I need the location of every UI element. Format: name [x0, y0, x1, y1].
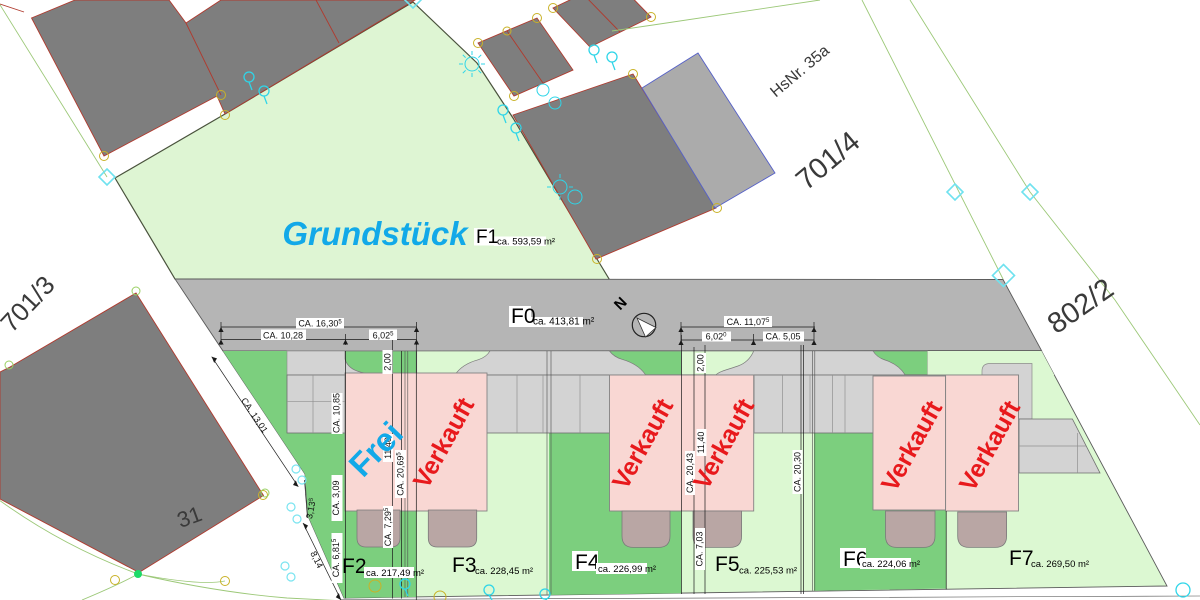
svg-text:Grundstück: Grundstück [282, 215, 469, 252]
svg-text:ca. 228,45 m²: ca. 228,45 m² [475, 566, 533, 577]
svg-text:ca. 224,06 m²: ca. 224,06 m² [862, 559, 920, 570]
svg-text:F7: F7 [1009, 547, 1034, 570]
svg-text:ca. 593,59 m²: ca. 593,59 m² [497, 237, 555, 248]
svg-text:CA. 10,85: CA. 10,85 [332, 393, 342, 433]
svg-text:ca. 217,49 m²: ca. 217,49 m² [366, 568, 424, 579]
svg-text:2,00: 2,00 [696, 354, 706, 372]
svg-text:ca. 269,50 m²: ca. 269,50 m² [1031, 559, 1089, 570]
svg-text:CA. 6,815: CA. 6,815 [331, 538, 341, 577]
svg-text:CA. 7,03: CA. 7,03 [695, 531, 705, 566]
svg-text:CA. 7,295: CA. 7,295 [383, 507, 393, 546]
svg-text:F1: F1 [476, 227, 498, 248]
svg-text:CA. 20,695: CA. 20,695 [396, 452, 406, 496]
svg-text:F5: F5 [715, 553, 740, 576]
svg-text:CA. 16,305: CA. 16,305 [298, 319, 342, 329]
svg-text:ca. 226,99 m²: ca. 226,99 m² [598, 564, 656, 575]
svg-text:F2: F2 [342, 555, 367, 578]
svg-text:ca. 225,53 m²: ca. 225,53 m² [739, 566, 797, 577]
svg-text:ca. 413,81 m²: ca. 413,81 m² [533, 317, 595, 328]
svg-text:CA. 20,30: CA. 20,30 [793, 452, 803, 492]
svg-text:CA. 5,05: CA. 5,05 [765, 332, 800, 342]
svg-text:CA. 11,075: CA. 11,075 [727, 317, 770, 327]
svg-text:CA. 10,28: CA. 10,28 [263, 331, 303, 341]
svg-text:F3: F3 [452, 554, 477, 577]
svg-text:CA. 3,09: CA. 3,09 [331, 480, 341, 515]
svg-text:F0: F0 [511, 305, 536, 328]
svg-text:2,00: 2,00 [383, 353, 393, 371]
